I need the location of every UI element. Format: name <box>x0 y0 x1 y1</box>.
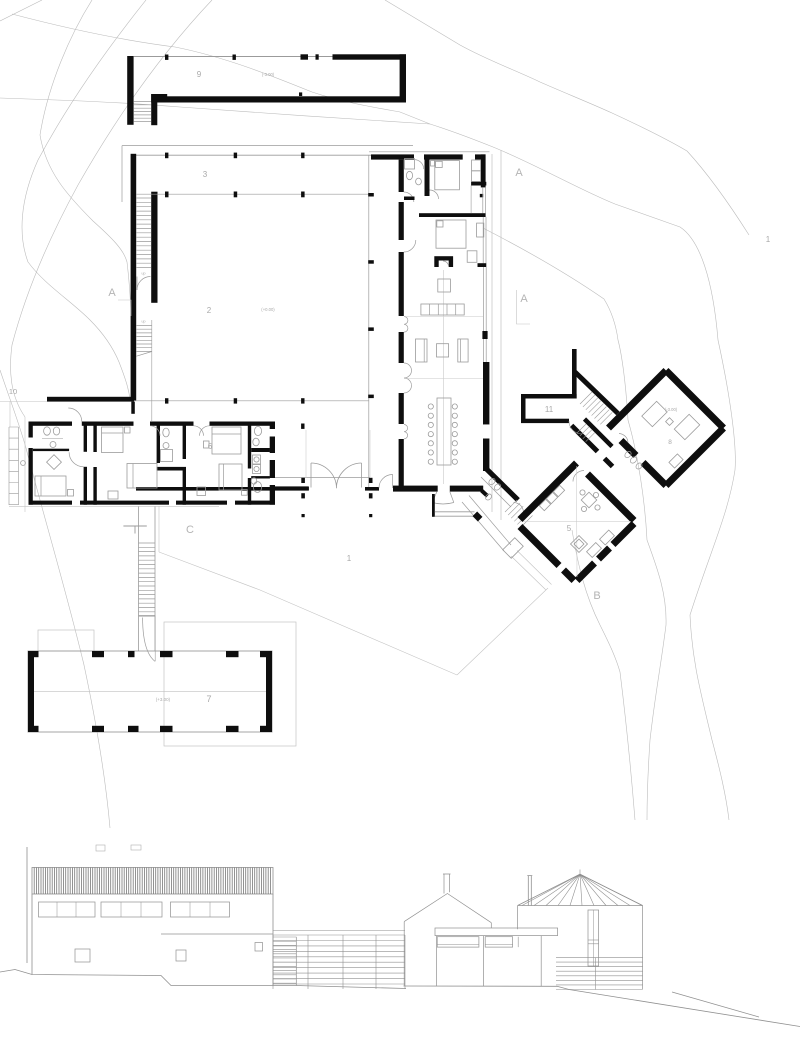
svg-text:up: up <box>142 272 146 276</box>
svg-text:(-3.00): (-3.00) <box>262 72 275 77</box>
svg-text:(-3.00): (-3.00) <box>665 407 678 412</box>
svg-text:A: A <box>520 293 528 305</box>
svg-text:6: 6 <box>208 442 213 451</box>
svg-text:1: 1 <box>347 554 352 563</box>
svg-text:7: 7 <box>206 694 211 704</box>
svg-text:8: 8 <box>668 439 672 446</box>
svg-text:2: 2 <box>207 306 212 315</box>
svg-text:1: 1 <box>766 235 771 244</box>
svg-text:3: 3 <box>203 170 208 179</box>
svg-text:C: C <box>186 524 194 536</box>
svg-text:up: up <box>142 320 146 324</box>
svg-text:B: B <box>593 590 600 602</box>
svg-text:9: 9 <box>197 70 202 79</box>
svg-text:10: 10 <box>9 387 17 396</box>
svg-text:11: 11 <box>545 405 554 414</box>
svg-text:A: A <box>108 287 116 299</box>
svg-text:(+0.00): (+0.00) <box>261 307 275 312</box>
svg-text:5: 5 <box>567 524 572 533</box>
svg-text:(+3.00): (+3.00) <box>156 697 171 702</box>
svg-text:A: A <box>515 167 523 179</box>
